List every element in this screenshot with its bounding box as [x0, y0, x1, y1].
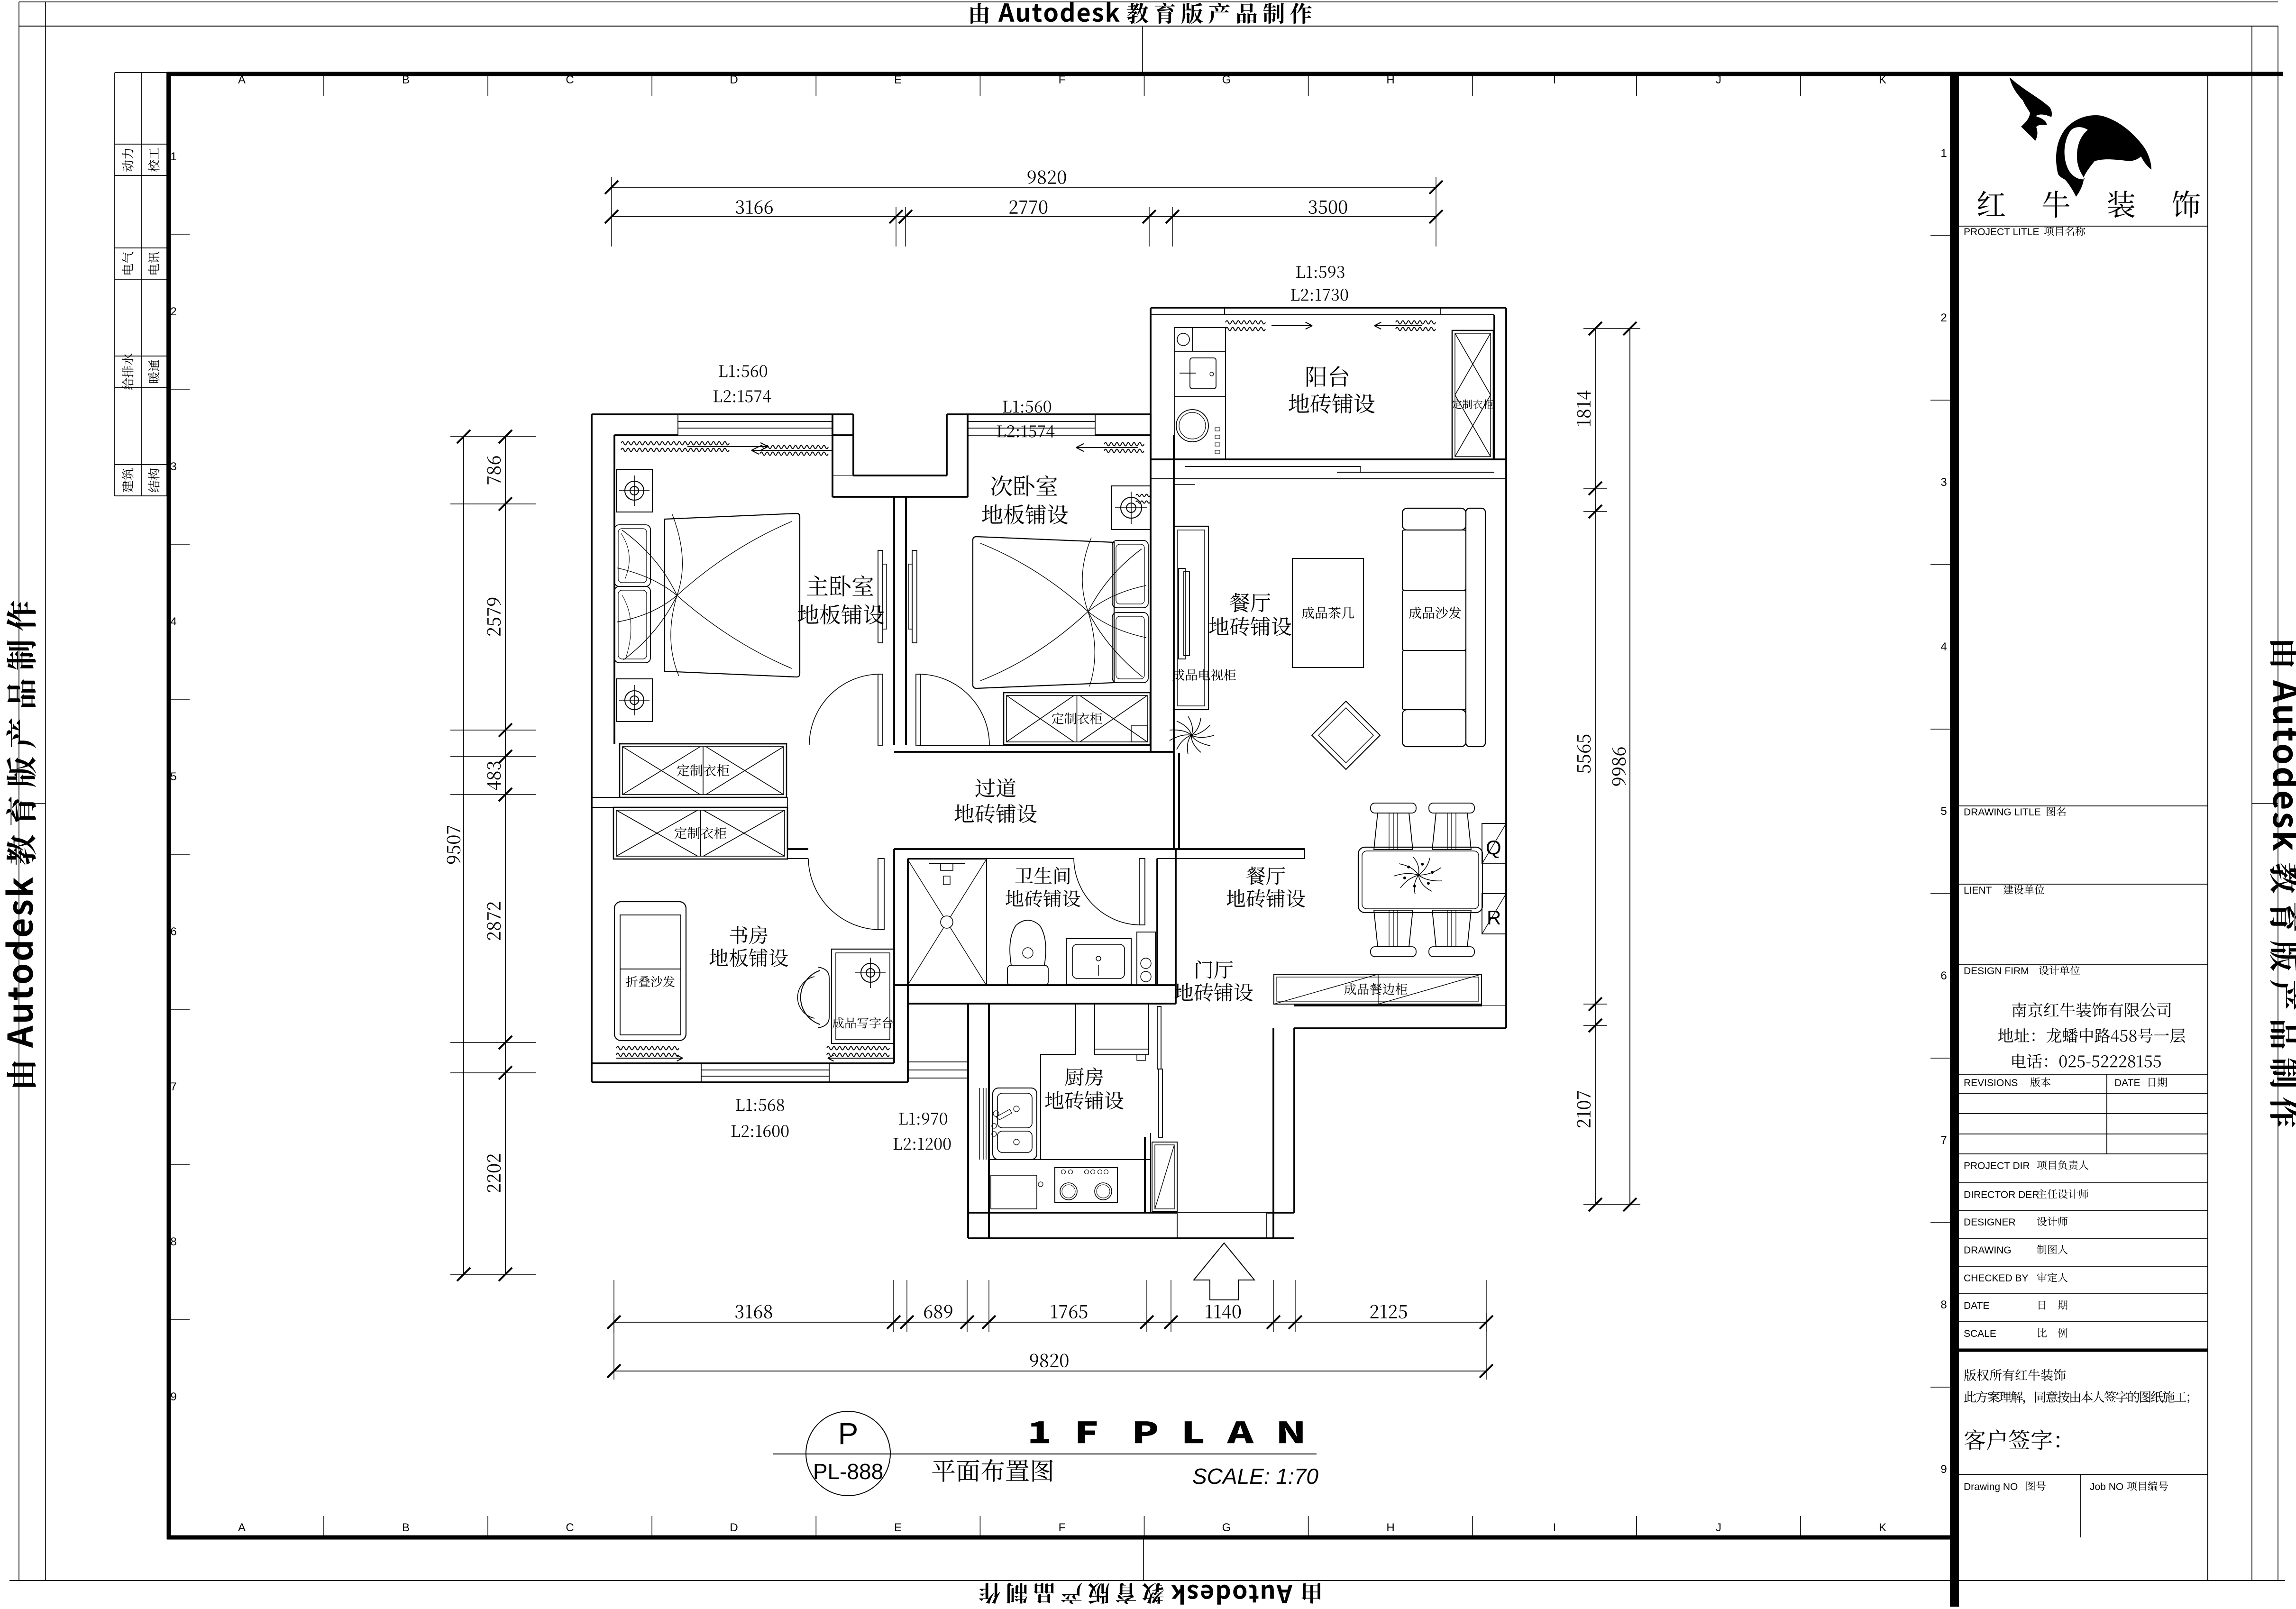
svg-text:REVISIONS: REVISIONS	[1964, 1078, 2018, 1088]
svg-text:I: I	[1553, 73, 1556, 86]
svg-text:8: 8	[170, 1235, 176, 1248]
svg-text:DESIGN FIRM: DESIGN FIRM	[1964, 966, 2029, 977]
svg-text:P: P	[838, 1417, 859, 1451]
svg-text:I: I	[1553, 1521, 1556, 1534]
svg-text:Job NO: Job NO	[2090, 1481, 2123, 1492]
svg-text:D: D	[730, 1521, 738, 1534]
svg-text:Drawing NO: Drawing NO	[1964, 1481, 2018, 1492]
svg-text:DRAWING LITLE: DRAWING LITLE	[1964, 807, 2041, 818]
svg-text:CHECKED BY: CHECKED BY	[1964, 1273, 2029, 1284]
svg-text:F: F	[1059, 73, 1066, 86]
svg-text:9: 9	[1940, 1463, 1947, 1476]
svg-text:5: 5	[1940, 805, 1947, 818]
svg-text:C: C	[566, 73, 574, 86]
svg-text:H: H	[1386, 73, 1394, 86]
svg-text:R: R	[1487, 906, 1501, 929]
svg-text:DATE: DATE	[1964, 1300, 1989, 1311]
svg-text:DATE: DATE	[2114, 1078, 2140, 1088]
svg-text:F: F	[1059, 1521, 1066, 1534]
svg-text:J: J	[1716, 1521, 1721, 1534]
svg-text:K: K	[1879, 1521, 1886, 1534]
svg-text:PL-888: PL-888	[813, 1459, 883, 1484]
svg-text:6: 6	[170, 925, 176, 938]
svg-text:8: 8	[1940, 1298, 1947, 1311]
svg-text:6: 6	[1940, 969, 1947, 982]
svg-text:1: 1	[170, 150, 176, 163]
svg-text:4: 4	[1940, 640, 1947, 653]
svg-text:DIRECTOR DER: DIRECTOR DER	[1964, 1189, 2039, 1200]
svg-text:LIENT: LIENT	[1964, 885, 1992, 896]
svg-text:B: B	[402, 73, 410, 86]
svg-text:PROJECT DIR: PROJECT DIR	[1964, 1161, 2030, 1171]
svg-text:4: 4	[170, 615, 176, 628]
svg-text:E: E	[894, 1521, 902, 1534]
svg-text:5: 5	[170, 770, 176, 783]
svg-text:SCALE: SCALE	[1964, 1328, 1996, 1339]
svg-text:Q: Q	[1486, 836, 1501, 859]
svg-text:7: 7	[1940, 1134, 1947, 1147]
svg-text:K: K	[1879, 73, 1886, 86]
svg-text:A: A	[238, 1521, 246, 1534]
svg-text:E: E	[894, 73, 902, 86]
svg-text:G: G	[1222, 73, 1231, 86]
svg-text:D: D	[730, 73, 738, 86]
svg-text:2: 2	[1940, 311, 1947, 324]
svg-text:C: C	[566, 1521, 574, 1534]
svg-text:A: A	[238, 73, 246, 86]
svg-text:9: 9	[170, 1390, 176, 1403]
svg-text:3: 3	[1940, 476, 1947, 489]
svg-text:PROJECT LITLE: PROJECT LITLE	[1964, 227, 2040, 238]
svg-text:DRAWING: DRAWING	[1964, 1245, 2012, 1256]
svg-text:DESIGNER: DESIGNER	[1964, 1217, 2016, 1228]
svg-text:3: 3	[170, 460, 176, 473]
svg-text:7: 7	[170, 1080, 176, 1093]
svg-text:1: 1	[1940, 147, 1947, 160]
svg-text:SCALE: 1:70: SCALE: 1:70	[1192, 1464, 1318, 1489]
svg-text:B: B	[402, 1521, 410, 1534]
svg-text:H: H	[1386, 1521, 1394, 1534]
svg-text:2: 2	[170, 305, 176, 318]
svg-text:J: J	[1716, 73, 1721, 86]
svg-text:G: G	[1222, 1521, 1231, 1534]
